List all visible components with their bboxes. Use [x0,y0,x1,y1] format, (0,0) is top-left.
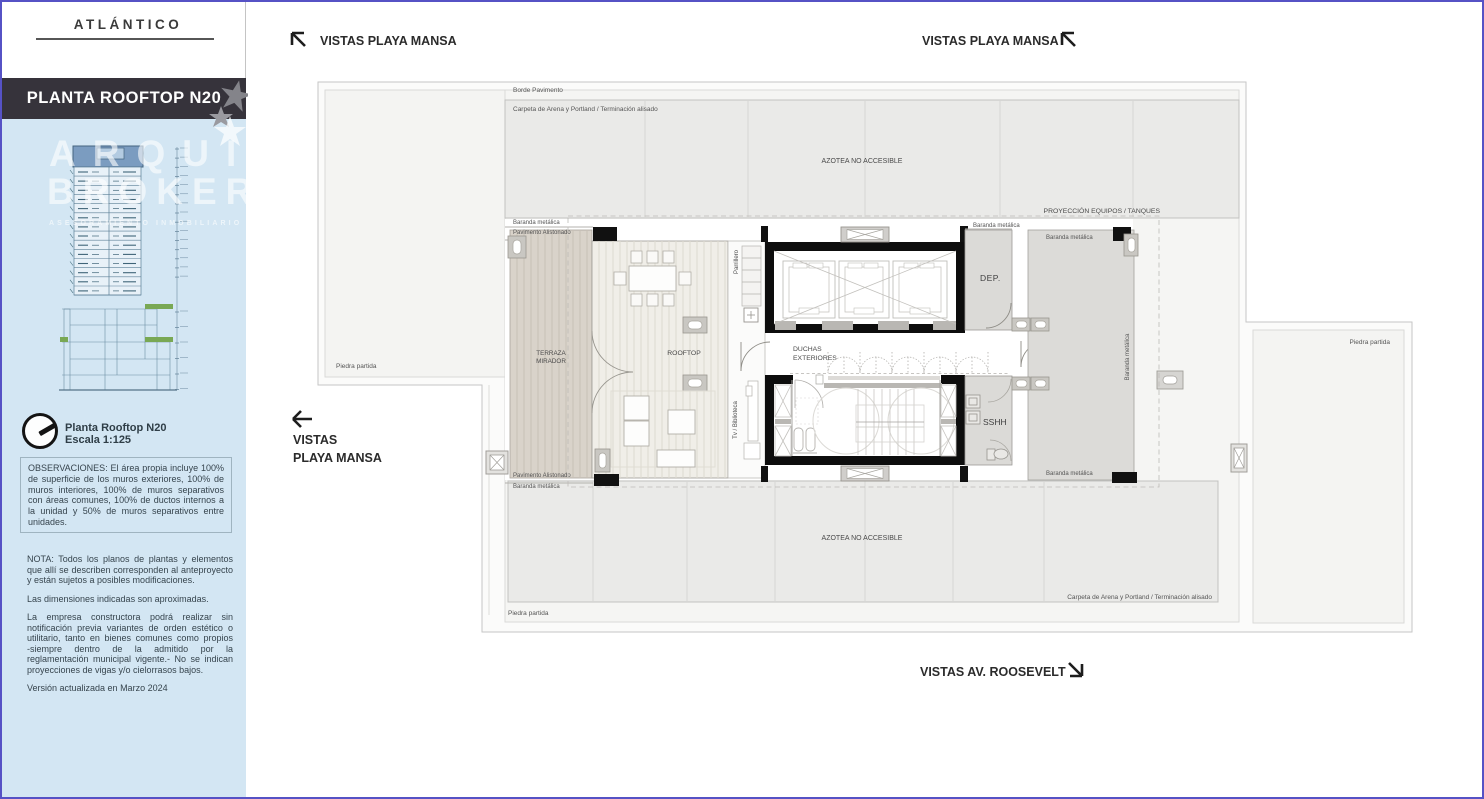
svg-text:Baranda metálica: Baranda metálica [513,484,560,490]
svg-text:TERRAZA: TERRAZA [536,350,566,357]
svg-text:DEP.: DEP. [980,273,1001,283]
svg-text:Parrillero: Parrillero [734,249,740,274]
svg-text:AZOTEA NO ACCESIBLE: AZOTEA NO ACCESIBLE [822,158,903,165]
svg-text:Borde Pavimento: Borde Pavimento [513,87,563,94]
svg-text:Baranda metálica: Baranda metálica [1046,235,1093,241]
svg-text:VISTAS PLAYA MANSA: VISTAS PLAYA MANSA [922,34,1059,48]
svg-text:MIRADOR: MIRADOR [536,358,566,365]
svg-text:VISTAS PLAYA MANSA: VISTAS PLAYA MANSA [320,34,457,48]
svg-text:PLAYA MANSA: PLAYA MANSA [293,451,382,465]
svg-text:DUCHAS: DUCHAS [793,346,822,353]
svg-text:Baranda metálica: Baranda metálica [513,220,560,226]
svg-text:SSHH: SSHH [983,417,1007,427]
svg-text:Pavimento Alistonado: Pavimento Alistonado [513,473,571,479]
svg-text:PROYECCIÓN EQUIPOS / TANQUES: PROYECCIÓN EQUIPOS / TANQUES [1044,206,1161,215]
svg-text:Piedra partida: Piedra partida [508,610,549,617]
svg-text:Carpeta de Arena y Portland /: Carpeta de Arena y Portland / Terminació… [1067,594,1212,601]
svg-text:VISTAS AV. ROOSEVELT: VISTAS AV. ROOSEVELT [920,665,1066,679]
svg-text:Tv / Biblioteca: Tv / Biblioteca [733,400,739,438]
svg-text:VISTAS: VISTAS [293,433,337,447]
svg-text:Carpeta de Arena y Portland /: Carpeta de Arena y Portland / Terminació… [513,106,658,113]
svg-text:AZOTEA NO ACCESIBLE: AZOTEA NO ACCESIBLE [822,535,903,542]
svg-text:Piedra partida: Piedra partida [336,363,377,370]
svg-text:Baranda metálica: Baranda metálica [1125,333,1131,380]
svg-text:Baranda metálica: Baranda metálica [1046,471,1093,477]
svg-text:ROOFTOP: ROOFTOP [667,350,701,357]
svg-text:Baranda metálica: Baranda metálica [973,223,1020,229]
svg-text:EXTERIORES: EXTERIORES [793,355,837,362]
svg-text:Pavimento Alistonado: Pavimento Alistonado [513,230,571,236]
svg-text:Piedra partida: Piedra partida [1350,339,1391,346]
